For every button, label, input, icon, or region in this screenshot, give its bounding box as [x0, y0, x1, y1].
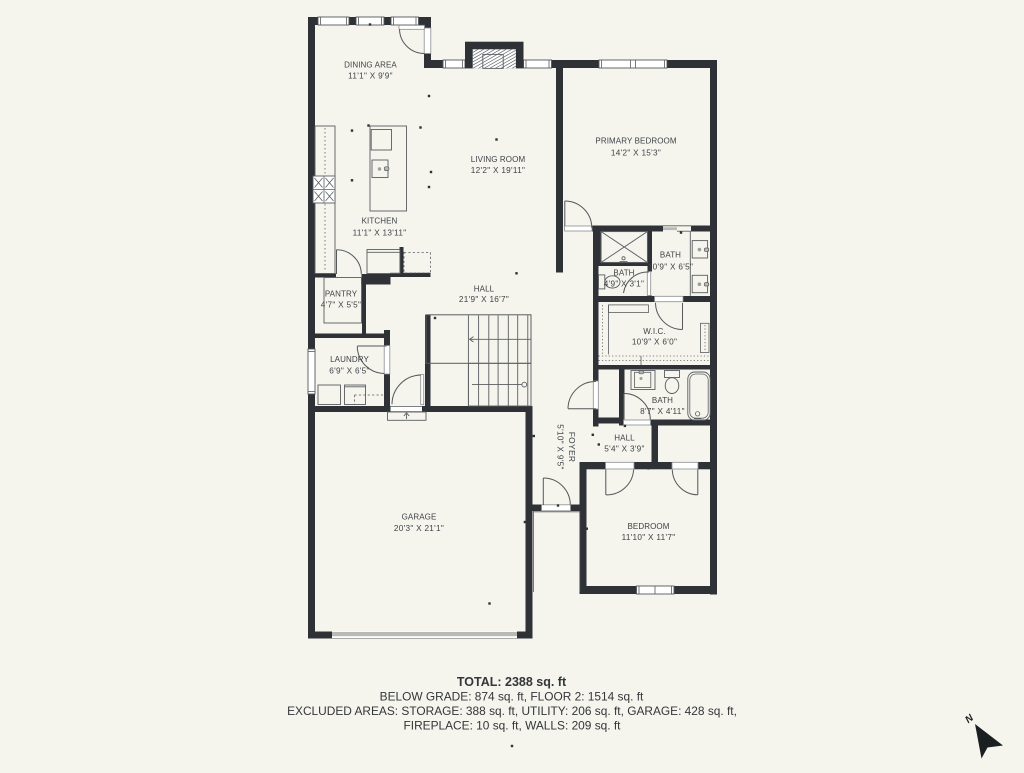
svg-text:20'3" X 21'1": 20'3" X 21'1" — [394, 524, 444, 533]
svg-text:10'9" X 6'0": 10'9" X 6'0" — [632, 337, 677, 346]
svg-text:BELOW GRADE: 874 sq. ft, FLOOR: BELOW GRADE: 874 sq. ft, FLOOR 2: 1514 s… — [380, 690, 644, 704]
svg-text:BEDROOM: BEDROOM — [627, 522, 669, 531]
svg-text:8'7" X 4'11": 8'7" X 4'11" — [640, 407, 685, 416]
svg-text:21'9" X 16'7": 21'9" X 16'7" — [459, 295, 509, 304]
svg-text:4'7" X 5'5": 4'7" X 5'5" — [321, 301, 361, 310]
svg-text:GARAGE: GARAGE — [402, 512, 437, 521]
svg-text:5'4" X 3'9": 5'4" X 3'9" — [604, 445, 644, 454]
svg-text:BATH: BATH — [660, 250, 681, 259]
svg-text:4'9" X 3'1": 4'9" X 3'1" — [604, 280, 644, 289]
svg-text:KITCHEN: KITCHEN — [362, 217, 398, 226]
svg-text:PRIMARY BEDROOM: PRIMARY BEDROOM — [595, 137, 676, 146]
svg-text:LAUNDRY: LAUNDRY — [330, 355, 369, 364]
svg-text:FIREPLACE: 10 sq. ft, WALLS: 2: FIREPLACE: 10 sq. ft, WALLS: 209 sq. ft — [404, 719, 622, 733]
svg-text:EXCLUDED AREAS: STORAGE: 388 s: EXCLUDED AREAS: STORAGE: 388 sq. ft, UTI… — [287, 704, 737, 718]
svg-text:14'2" X 15'3": 14'2" X 15'3" — [611, 149, 661, 158]
svg-text:11'1" X 13'11": 11'1" X 13'11" — [353, 228, 407, 237]
svg-text:11'1" X 9'9": 11'1" X 9'9" — [348, 71, 393, 80]
svg-text:11'10" X 11'7": 11'10" X 11'7" — [622, 533, 676, 542]
svg-text:W.I.C.: W.I.C. — [643, 327, 665, 336]
svg-text:12'2" X 19'11": 12'2" X 19'11" — [471, 166, 525, 175]
svg-text:BATH: BATH — [613, 268, 634, 277]
svg-text:10'9" X 6'5": 10'9" X 6'5" — [648, 262, 693, 271]
svg-text:6'9" X 6'5": 6'9" X 6'5" — [329, 366, 369, 375]
svg-text:BATH: BATH — [652, 396, 673, 405]
svg-text:HALL: HALL — [614, 433, 635, 442]
svg-text:HALL: HALL — [474, 285, 495, 294]
svg-text:5'10" X 9'5": 5'10" X 9'5" — [556, 424, 565, 469]
svg-text:TOTAL: 2388 sq. ft: TOTAL: 2388 sq. ft — [457, 675, 567, 689]
svg-text:LIVING ROOM: LIVING ROOM — [471, 155, 526, 164]
svg-text:FOYER: FOYER — [567, 432, 577, 463]
svg-text:DINING AREA: DINING AREA — [344, 60, 397, 69]
svg-text:PANTRY: PANTRY — [325, 289, 358, 298]
